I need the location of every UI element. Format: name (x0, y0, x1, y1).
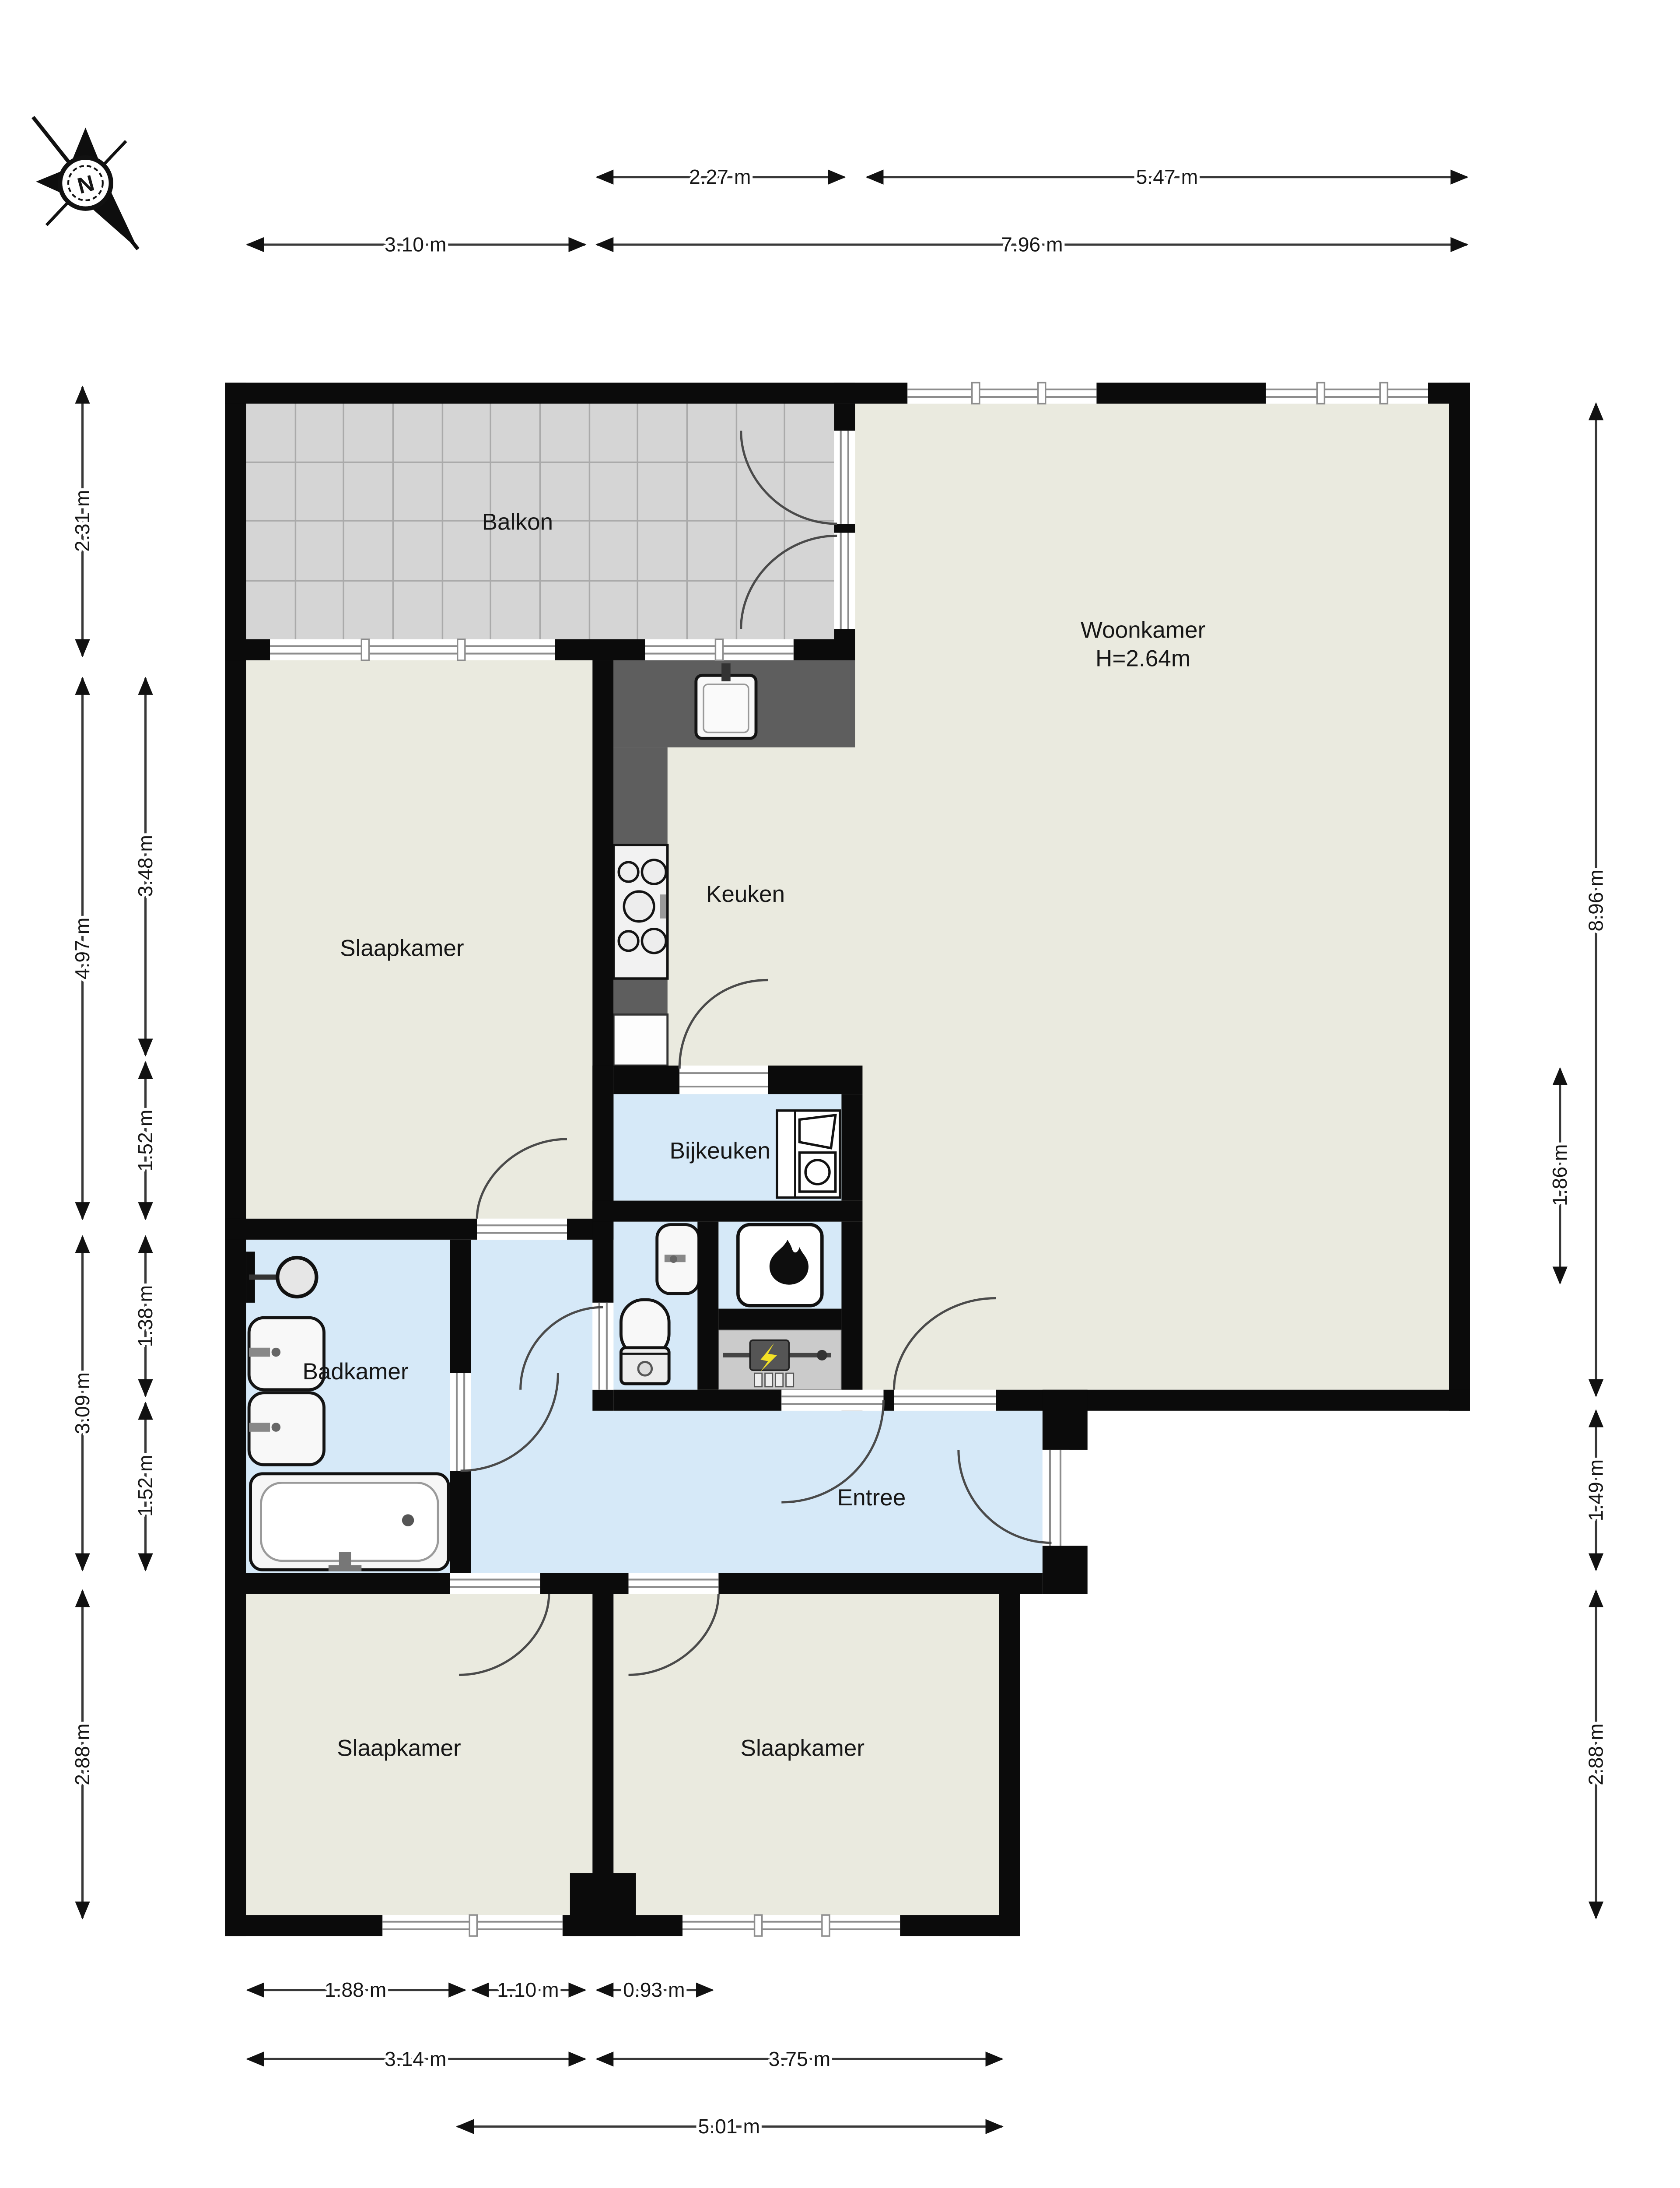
window-bottom-right (682, 1915, 900, 1936)
dim-top-inner-left: 2.27 m (597, 165, 845, 188)
toilet-icon (621, 1300, 669, 1384)
woonkamer-height-label: H=2.64m (1095, 646, 1190, 672)
bijkeuken-label: Bijkeuken (670, 1138, 770, 1164)
wc-washbasin-icon (657, 1225, 699, 1294)
svg-text:8.96 m: 8.96 m (1584, 870, 1607, 932)
svg-text:1.10 m: 1.10 m (497, 1978, 559, 2001)
dim-left-lower: 2.88 m (71, 1591, 94, 1918)
dim-left-balkon: 2.31 m (71, 387, 94, 656)
svg-text:5.47 m: 5.47 m (1136, 165, 1198, 188)
floorplan-canvas: N (0, 0, 1680, 2188)
svg-text:1.52 m: 1.52 m (134, 1110, 157, 1172)
dim-bottom-row1-c: 0.93 m (597, 1978, 713, 2001)
svg-text:2.31 m: 2.31 m (71, 490, 94, 552)
dim-right-lower: 2.88 m (1584, 1591, 1607, 1918)
washbasin-icon-2 (249, 1393, 324, 1465)
keuken-label: Keuken (706, 881, 785, 907)
dim-right-inner: 1.86 m (1548, 1069, 1571, 1283)
svg-text:3.14 m: 3.14 m (385, 2048, 446, 2070)
svg-text:5.01 m: 5.01 m (698, 2115, 760, 2138)
dim-left-inner-mid3: 1.52 m (134, 1403, 157, 1570)
compass-rose-icon: N (33, 117, 138, 249)
dim-right-upper: 8.96 m (1584, 404, 1607, 1396)
dim-bottom-row2-a: 3.14 m (248, 2048, 585, 2070)
svg-text:3.75 m: 3.75 m (769, 2048, 830, 2070)
dim-bottom-row1-a: 1.88 m (248, 1978, 465, 2001)
dim-top-outer-left: 3.10 m (248, 233, 585, 256)
boiler-heater-icon (738, 1225, 822, 1306)
window-balkon-slaapkamer (270, 639, 555, 660)
svg-text:2.88 m: 2.88 m (1584, 1723, 1607, 1785)
dim-left-upper: 4.97 m (71, 678, 94, 1219)
svg-text:7.96 m: 7.96 m (1001, 233, 1063, 256)
dim-bottom-row1-b: 1.10 m (472, 1978, 585, 2001)
window-woonkamer-top-1 (907, 383, 1096, 404)
balkon-label: Balkon (482, 509, 553, 535)
woonkamer-floor (855, 404, 1449, 1390)
dim-top-outer-right: 7.96 m (597, 233, 1467, 256)
washing-machine-icon (777, 1111, 840, 1198)
svg-text:3.48 m: 3.48 m (134, 835, 157, 897)
meter-cupboard-panel (718, 1330, 841, 1390)
svg-text:1.88 m: 1.88 m (325, 1978, 386, 2001)
svg-text:2.88 m: 2.88 m (71, 1723, 94, 1785)
slaapkamer-bottom-left-label: Slaapkamer (337, 1736, 461, 1761)
window-balkon-keuken (645, 639, 793, 660)
dim-bottom-row2-b: 3.75 m (597, 2048, 1002, 2070)
woonkamer-label: Woonkamer (1081, 617, 1205, 643)
slaapkamer-top-label: Slaapkamer (340, 936, 464, 961)
dim-left-inner-upper: 3.48 m (134, 678, 157, 1055)
slaapkamer-bottom-right-label: Slaapkamer (741, 1736, 865, 1761)
dim-top-inner-right: 5.47 m (867, 165, 1467, 188)
svg-text:1.49 m: 1.49 m (1584, 1459, 1607, 1522)
window-woonkamer-top-2 (1266, 383, 1428, 404)
dim-left-inner-mid2: 1.38 m (134, 1237, 157, 1396)
svg-text:0.93 m: 0.93 m (623, 1978, 685, 2001)
kitchen-appliance (613, 1014, 667, 1066)
dim-left-middle: 3.09 m (71, 1237, 94, 1570)
svg-text:1.38 m: 1.38 m (134, 1285, 157, 1347)
entree-label: Entree (837, 1485, 906, 1511)
svg-text:4.97 m: 4.97 m (71, 918, 94, 980)
dim-bottom-row3: 5.01 m (458, 2115, 1002, 2138)
kitchen-sink-icon (696, 663, 756, 738)
svg-text:1.52 m: 1.52 m (134, 1455, 157, 1517)
dim-left-inner-mid1: 1.52 m (134, 1062, 157, 1219)
dim-right-mid: 1.49 m (1584, 1411, 1607, 1570)
badkamer-label: Badkamer (302, 1359, 408, 1385)
svg-text:2.27 m: 2.27 m (689, 165, 751, 188)
window-bottom-left (382, 1915, 562, 1936)
svg-text:3.10 m: 3.10 m (385, 233, 446, 256)
svg-text:3.09 m: 3.09 m (71, 1372, 94, 1434)
stove-icon (613, 845, 667, 978)
bathtub-icon (251, 1474, 449, 1571)
svg-text:1.86 m: 1.86 m (1548, 1144, 1571, 1206)
